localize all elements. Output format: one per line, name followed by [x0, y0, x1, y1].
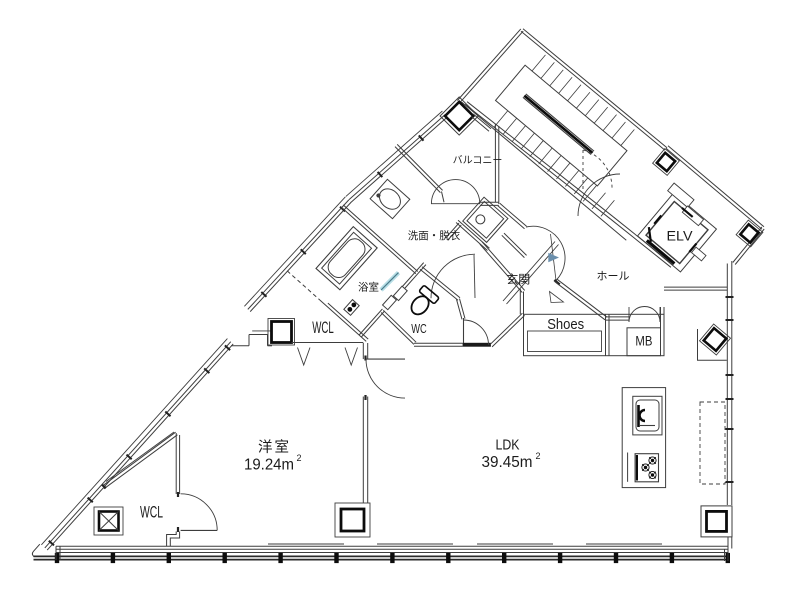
svg-text:WC: WC	[411, 322, 427, 336]
svg-text:浴室: 浴室	[358, 281, 379, 294]
svg-text:洋室: 洋室	[258, 439, 291, 456]
svg-text:2: 2	[296, 453, 301, 463]
svg-text:19.24m: 19.24m	[244, 457, 294, 474]
svg-text:ELV: ELV	[667, 228, 694, 244]
svg-text:ホール: ホール	[597, 270, 630, 283]
svg-text:玄関: 玄関	[506, 272, 530, 287]
svg-text:洗面・脱衣: 洗面・脱衣	[408, 229, 461, 242]
svg-text:LDK: LDK	[496, 437, 520, 454]
svg-text:バルコニー: バルコニー	[453, 155, 503, 167]
svg-text:39.45m: 39.45m	[482, 454, 533, 471]
svg-text:MB: MB	[635, 334, 652, 349]
svg-text:WCL: WCL	[312, 319, 334, 337]
svg-text:Shoes: Shoes	[547, 316, 584, 333]
svg-text:WCL: WCL	[140, 503, 163, 522]
svg-text:2: 2	[535, 451, 540, 461]
